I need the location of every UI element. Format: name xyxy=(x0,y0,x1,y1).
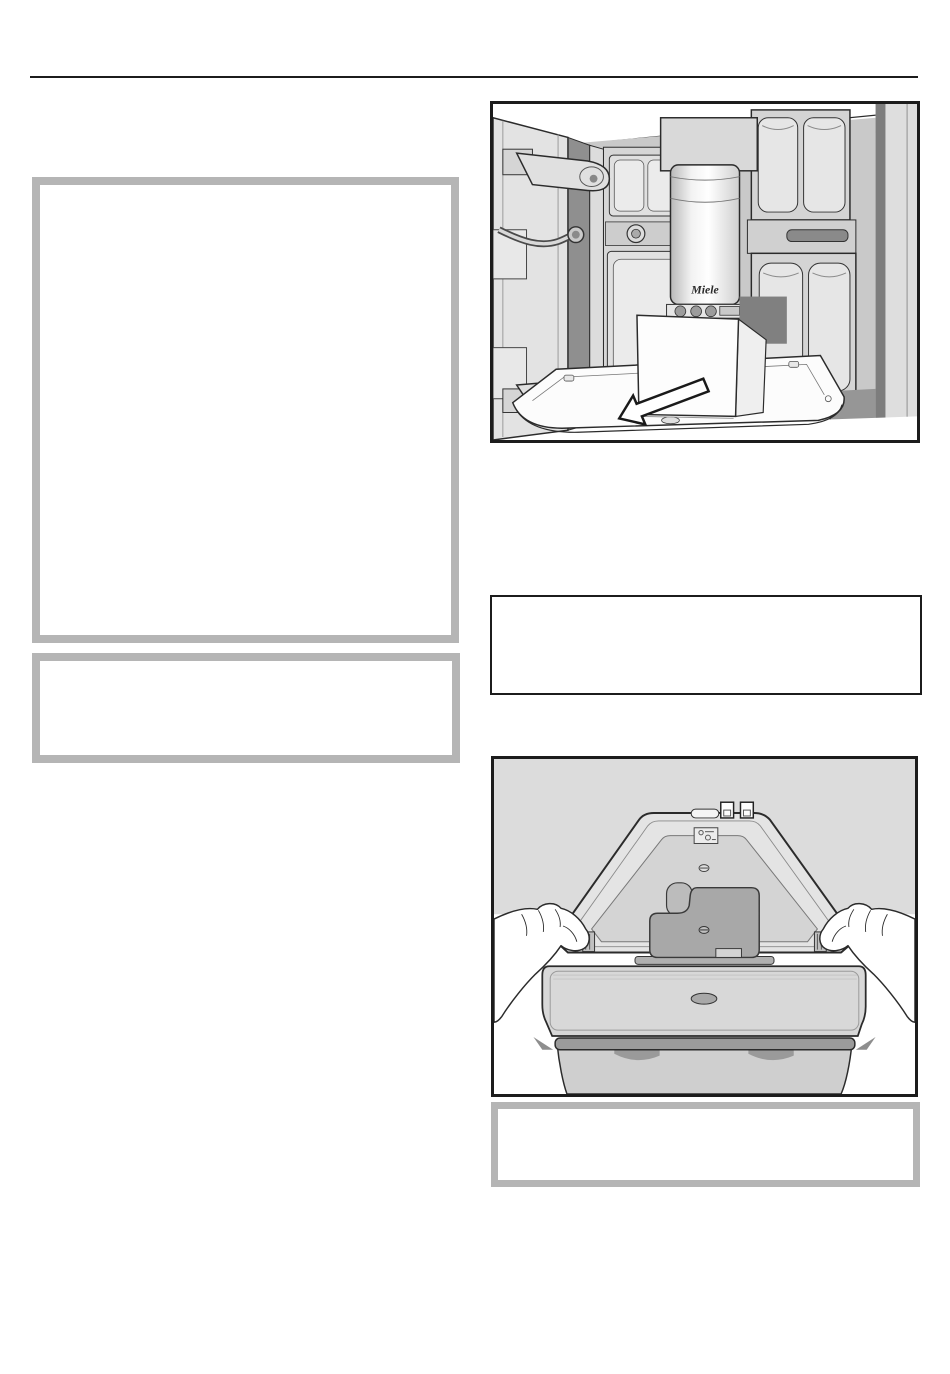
callout-box-small xyxy=(32,653,460,763)
gasket-strip xyxy=(555,1038,855,1050)
figure-cover-lift xyxy=(491,756,918,1097)
filter-pad xyxy=(650,883,759,958)
bin-handle-slot xyxy=(787,230,848,242)
miele-logo-text: Miele xyxy=(690,283,719,297)
right-door-edge xyxy=(876,104,917,440)
cover-label xyxy=(694,828,718,844)
callout-box-bottom xyxy=(491,1102,920,1187)
cover-slot xyxy=(691,809,719,818)
figure-filter-removal: Miele xyxy=(490,101,920,443)
cover-lift-illustration xyxy=(494,759,915,1094)
lid-handle-recess xyxy=(691,993,717,1004)
note-box xyxy=(490,595,922,695)
callout-box-large xyxy=(32,177,459,643)
header-rule xyxy=(30,76,918,78)
appliance-body xyxy=(557,1044,852,1094)
manual-page: Miele xyxy=(0,0,950,1374)
filter-removal-illustration: Miele xyxy=(493,104,917,440)
